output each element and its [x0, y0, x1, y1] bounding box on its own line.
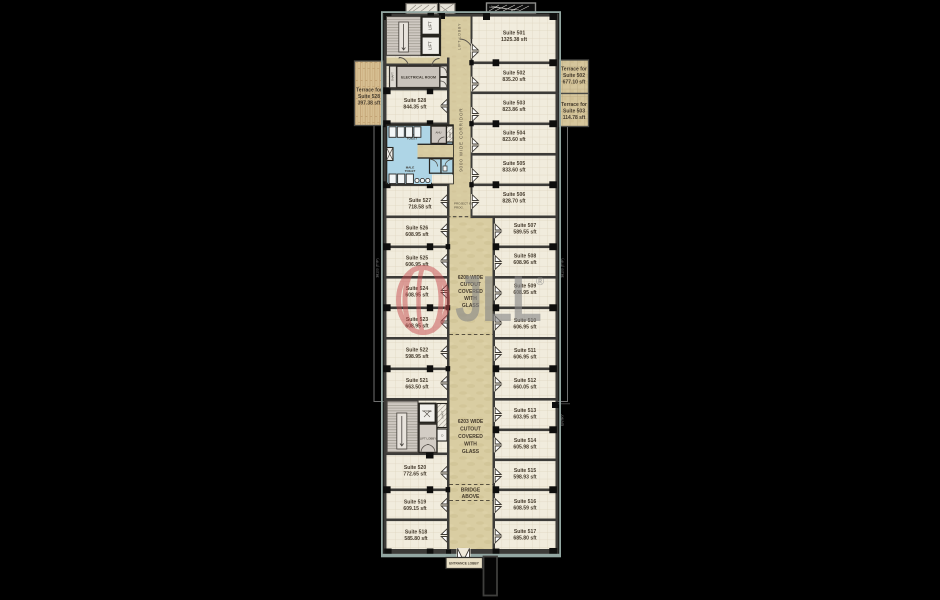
svg-text:828.70 sft: 828.70 sft: [502, 198, 526, 204]
svg-text:LIFT LOBBY: LIFT LOBBY: [420, 437, 436, 441]
svg-text:Suite 525: Suite 525: [406, 256, 429, 262]
svg-text:SHAFT: SHAFT: [390, 72, 394, 81]
svg-text:823.86 sft: 823.86 sft: [502, 107, 526, 113]
svg-text:Suite 521: Suite 521: [406, 378, 429, 384]
svg-text:COVERED: COVERED: [458, 434, 483, 440]
svg-text:BRIDGE: BRIDGE: [461, 488, 481, 494]
svg-text:AHU: AHU: [436, 131, 442, 135]
svg-text:718.58 sft: 718.58 sft: [408, 204, 432, 210]
svg-text:677.10 sft: 677.10 sft: [563, 80, 586, 86]
svg-text:LIFT LOBBY: LIFT LOBBY: [457, 23, 462, 50]
svg-text:38100 (TYP): 38100 (TYP): [561, 258, 565, 277]
svg-text:ELECTRICAL ROOM: ELECTRICAL ROOM: [401, 76, 436, 80]
svg-text:38100 (TYP): 38100 (TYP): [376, 258, 380, 277]
svg-text:ABOVE: ABOVE: [462, 494, 480, 500]
svg-text:Suite 517: Suite 517: [514, 529, 537, 535]
svg-text:608.95 sft: 608.95 sft: [405, 232, 429, 238]
svg-text:397.38 sft: 397.38 sft: [358, 101, 381, 107]
svg-text:598.93 sft: 598.93 sft: [513, 474, 537, 480]
svg-text:Suite 505: Suite 505: [503, 161, 526, 167]
svg-text:Suite 518: Suite 518: [405, 530, 428, 536]
svg-text:Suite 519: Suite 519: [404, 500, 427, 506]
svg-text:Suite 503: Suite 503: [503, 101, 526, 107]
svg-text:1325.38 sft: 1325.38 sft: [501, 37, 527, 43]
svg-text:660.05 sft: 660.05 sft: [513, 384, 537, 390]
svg-text:Suite 527: Suite 527: [409, 198, 432, 204]
svg-text:Suite 511: Suite 511: [514, 348, 536, 354]
svg-text:STORE: STORE: [422, 409, 432, 413]
svg-text:833.60 sft: 833.60 sft: [502, 167, 526, 173]
svg-text:609.15 sft: 609.15 sft: [403, 506, 427, 512]
svg-text:Suite 503: Suite 503: [563, 109, 585, 115]
svg-text:Suite 522: Suite 522: [406, 348, 429, 354]
svg-text:608.59 sft: 608.59 sft: [513, 505, 537, 511]
svg-text:Terrace for: Terrace for: [561, 67, 587, 73]
svg-text:6203 WIDE: 6203 WIDE: [458, 419, 484, 425]
svg-text:WITH: WITH: [464, 442, 477, 448]
svg-text:TOILET: TOILET: [405, 169, 416, 173]
svg-text:Suite 528: Suite 528: [358, 94, 380, 100]
svg-text:605.98 sft: 605.98 sft: [513, 444, 537, 450]
svg-text:ENTRANCE LOBBY: ENTRANCE LOBBY: [449, 562, 480, 566]
svg-text:LIFT: LIFT: [427, 41, 432, 50]
svg-text:663.50 sft: 663.50 sft: [405, 384, 429, 390]
svg-text:Suite 520: Suite 520: [404, 465, 427, 471]
svg-text:114.78 sft: 114.78 sft: [563, 115, 586, 121]
svg-text:835.20 sft: 835.20 sft: [502, 77, 526, 83]
svg-text:772.65 sft: 772.65 sft: [403, 471, 427, 477]
svg-text:823.60 sft: 823.60 sft: [502, 137, 526, 143]
svg-text:Suite 508: Suite 508: [514, 254, 537, 260]
svg-text:PROG.: PROG.: [454, 206, 464, 210]
svg-text:589.55 sft: 589.55 sft: [513, 229, 537, 235]
svg-text:Suite 512: Suite 512: [514, 378, 537, 384]
svg-text:ENTRY: ENTRY: [561, 414, 565, 426]
svg-text:685.80 sft: 685.80 sft: [513, 535, 537, 541]
svg-text:Suite 501: Suite 501: [503, 31, 526, 37]
svg-text:598.95 sft: 598.95 sft: [405, 354, 429, 360]
svg-text:CUTOUT: CUTOUT: [460, 427, 481, 433]
svg-text:Suite 515: Suite 515: [514, 468, 537, 474]
svg-text:585.80 sft: 585.80 sft: [404, 536, 428, 542]
svg-text:LIFT: LIFT: [427, 21, 432, 30]
svg-text:JLL: JLL: [455, 264, 541, 336]
svg-text:Suite 504: Suite 504: [503, 131, 526, 137]
svg-text:Suite 526: Suite 526: [406, 226, 429, 232]
svg-text:Suite 502: Suite 502: [563, 73, 585, 79]
svg-text:Suite 506: Suite 506: [503, 192, 526, 198]
svg-text:DUCT: DUCT: [449, 131, 452, 138]
svg-text:GLASS: GLASS: [462, 449, 480, 455]
svg-text:Suite 516: Suite 516: [514, 499, 537, 505]
svg-text:SHAFT: SHAFT: [441, 410, 444, 419]
svg-text:Terrace for: Terrace for: [561, 102, 587, 108]
svg-text:Suite 528: Suite 528: [404, 98, 427, 104]
svg-text:Suite 502: Suite 502: [503, 71, 526, 77]
svg-text:9000 WIDE CORRIDOR: 9000 WIDE CORRIDOR: [459, 108, 464, 172]
svg-text:Suite 513: Suite 513: [514, 408, 537, 414]
svg-text:606.95 sft: 606.95 sft: [513, 354, 537, 360]
svg-text:Suite 514: Suite 514: [514, 438, 537, 444]
svg-text:844.35 sft: 844.35 sft: [403, 104, 427, 110]
svg-text:603.95 sft: 603.95 sft: [513, 414, 537, 420]
svg-text:®: ®: [536, 276, 544, 288]
svg-text:Terrace for: Terrace for: [356, 88, 382, 94]
svg-text:Suite 507: Suite 507: [514, 223, 537, 229]
